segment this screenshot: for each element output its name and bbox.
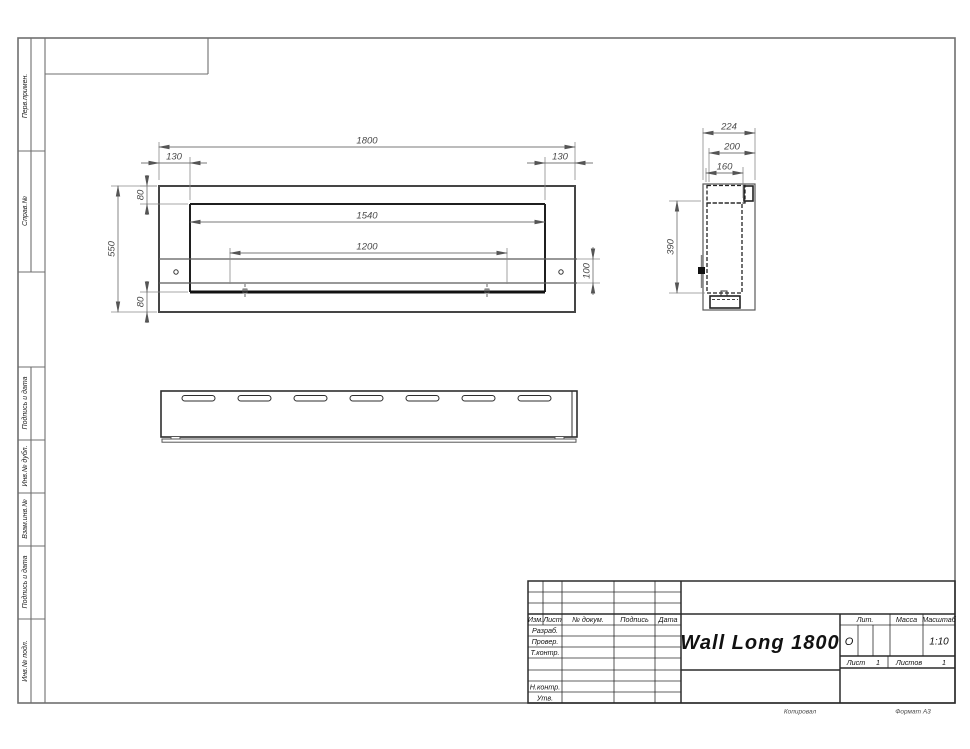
side-bolt-head [698,267,705,274]
dim-1540: 1540 [190,211,545,223]
side-burner-box [710,296,740,308]
row-utv: Утв. [536,694,553,703]
vent-slot [294,396,327,402]
scale-label: Масштаб [922,615,957,624]
vent-slot [518,396,551,402]
sheets-label: Листов [895,658,922,667]
margin-label-inv-podl: Инв.№ подл. [21,640,29,682]
left-margin-column: Перв.примен. Справ.№ Подпись и дата Инв.… [18,38,45,703]
dim-text-224: 224 [720,122,737,133]
vent-slot [182,396,215,402]
lit-label: Лит. [856,615,874,624]
technical-drawing: Перв.примен. Справ.№ Подпись и дата Инв.… [0,0,970,749]
row-nkontr: Н.контр. [530,683,560,692]
dim-text-390: 390 [666,238,677,255]
vent-slot [462,396,495,402]
dim-text-1200: 1200 [356,242,378,253]
dim-1800: 1800 [159,136,575,181]
vent-slot [238,396,271,402]
col-list: Лист [542,615,562,624]
row-tkontr: Т.контр. [531,648,560,657]
mounting-hole-left [174,270,178,274]
sheets-value: 1 [942,658,946,667]
row-razrab: Разраб. [532,626,558,635]
dim-130-right: 130 [527,152,593,201]
dim-text-1800: 1800 [356,136,378,147]
dim-text-550: 550 [107,240,118,257]
margin-label-perv-primen: Перв.примен. [22,74,29,119]
col-data: Дата [658,615,678,624]
copy-note: Копировал [784,709,817,716]
dim-text-80-top: 80 [136,189,147,200]
format-note: Формат А3 [895,709,931,716]
top-left-reference-box [45,38,208,74]
margin-label-sprav-no: Справ.№ [22,196,29,226]
footer-notes: Копировал Формат А3 [784,709,931,716]
massa-label: Масса [896,615,917,624]
side-view [698,184,755,310]
dim-text-200: 200 [723,142,741,153]
dim-130-left: 130 [141,152,207,201]
dim-390: 390 [666,201,706,293]
vent-slot [350,396,383,402]
bottom-rail [162,439,576,442]
sheet-value: 1 [876,658,880,667]
col-podpis: Подпись [620,615,649,624]
title-block: Изм. Лист № докум. Подпись Дата Разраб. … [528,581,957,703]
dim-550: 550 [107,186,158,312]
row-prover: Провер. [532,637,559,646]
dim-text-130-right: 130 [552,152,569,163]
dim-text-80-bottom: 80 [136,296,147,307]
mounting-hole-right [559,270,563,274]
side-hidden-top-box [707,186,745,204]
sheet-label: Лист [846,658,866,667]
dim-1200: 1200 [230,242,507,285]
vent-slot [406,396,439,402]
front-view-dimensions: 1800 130 130 80 1540 [107,136,601,324]
col-doc: № докум. [572,615,604,624]
dim-100: 100 [577,247,600,295]
margin-label-vzam-inv: Взам.инв.№ [22,499,29,539]
dim-80-top: 80 [136,175,189,215]
dim-160: 160 [706,162,743,199]
side-hidden-body [707,203,742,293]
col-izm: Изм. [528,615,543,624]
dim-text-100: 100 [582,262,593,279]
margin-label-inv-dubl: Инв.№ дубл. [21,445,29,486]
dim-text-130-left: 130 [166,152,183,163]
margin-label-podpis-data-2: Подпись и дата [21,555,29,608]
dim-text-1540: 1540 [356,211,378,222]
document-title: Wall Long 1800 [680,632,839,654]
lit-value: О [845,636,854,648]
sheet-frame [18,38,955,703]
dim-text-160: 160 [717,162,734,173]
margin-label-podpis-data-1: Подпись и дата [21,376,29,429]
drawing-sheet: Перв.примен. Справ.№ Подпись и дата Инв.… [0,0,970,749]
scale-value: 1:10 [929,637,949,648]
bottom-view [161,391,577,442]
dim-80-bottom: 80 [136,281,189,323]
